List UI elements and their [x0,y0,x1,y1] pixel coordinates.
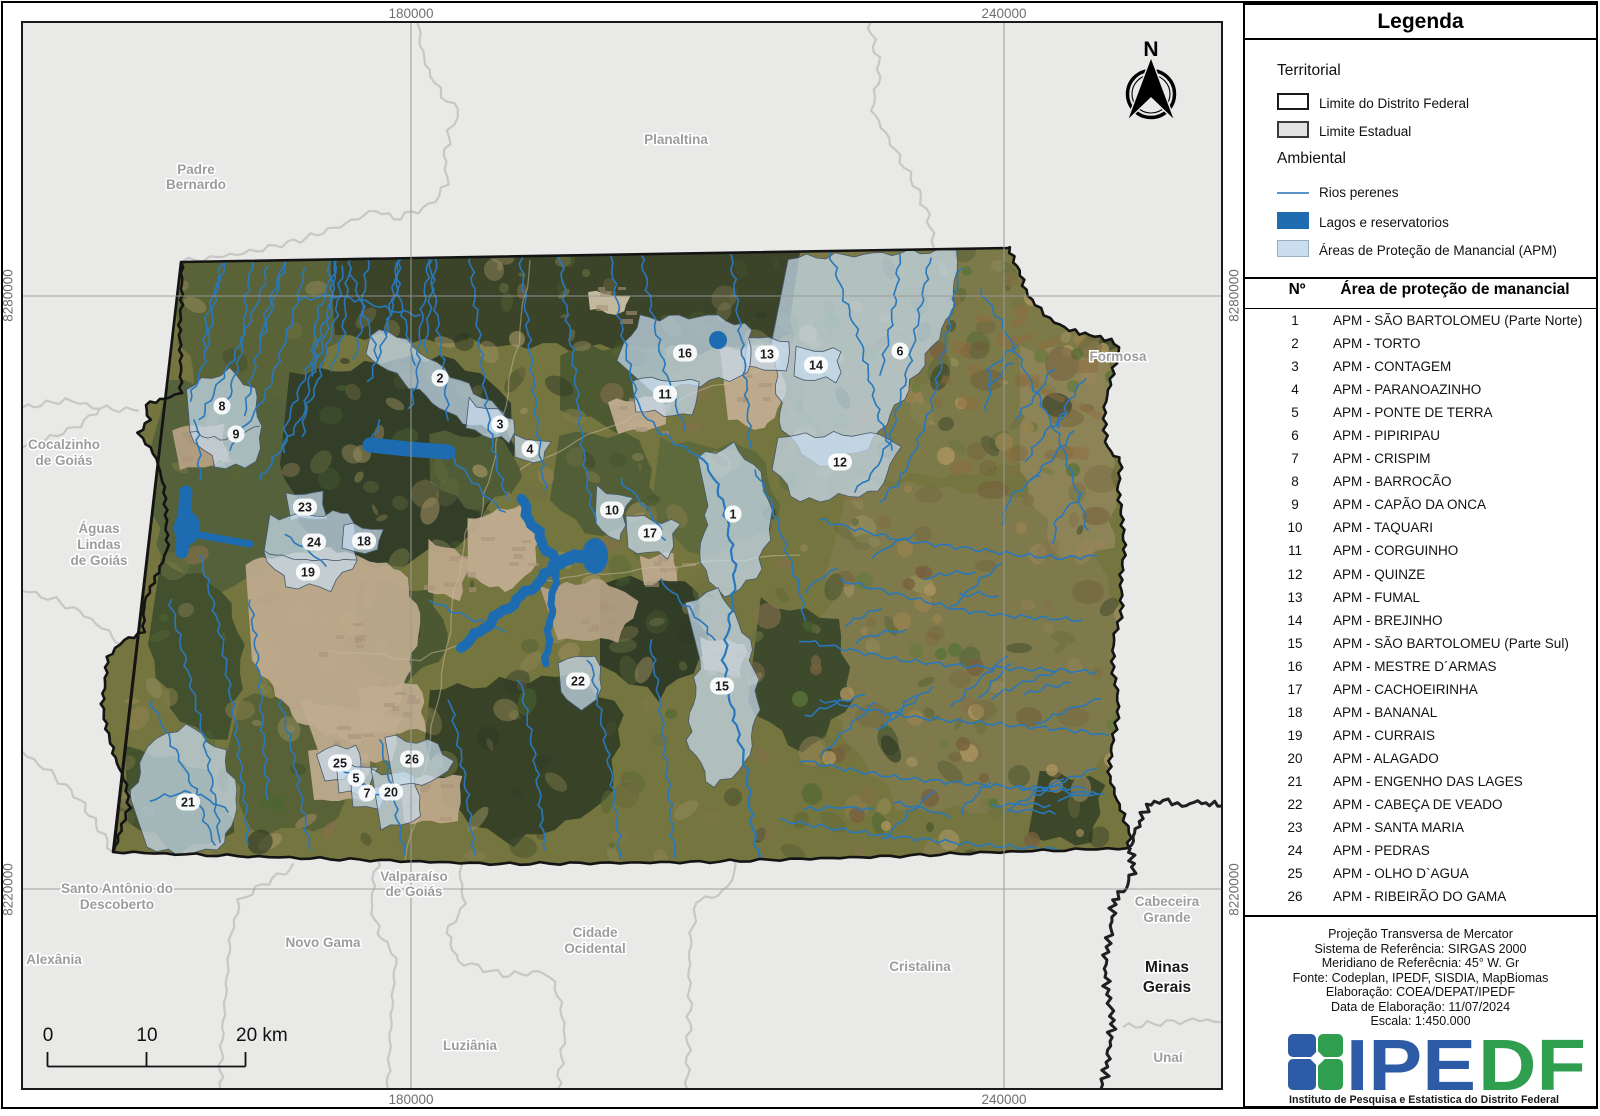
svg-text:de Goiás: de Goiás [70,553,127,568]
svg-text:14: 14 [809,359,823,373]
svg-text:16: 16 [678,347,692,361]
svg-text:23: 23 [298,501,312,515]
svg-text:Cabeceira: Cabeceira [1135,894,1200,909]
svg-text:1: 1 [730,508,737,522]
svg-text:Águas: Águas [78,521,119,536]
svg-text:Minas: Minas [1145,959,1189,976]
svg-text:10: 10 [136,1025,157,1046]
svg-text:Cidade: Cidade [572,925,618,940]
svg-text:Novo Gama: Novo Gama [285,935,361,950]
svg-text:13: 13 [760,348,774,362]
svg-text:Valparaíso: Valparaíso [380,869,448,884]
svg-text:19: 19 [301,566,315,580]
svg-text:5: 5 [353,772,360,786]
svg-text:26: 26 [405,753,419,767]
svg-text:Unaí: Unaí [1153,1050,1184,1065]
svg-text:Bernardo: Bernardo [166,177,226,192]
svg-text:Alexânia: Alexânia [26,952,82,967]
svg-text:12: 12 [833,456,847,470]
svg-text:N: N [1143,38,1158,61]
svg-text:7: 7 [364,787,371,801]
svg-text:18: 18 [357,535,371,549]
svg-text:Instituto de Pesquisa e Estati: Instituto de Pesquisa e Estatistica do D… [1289,1094,1559,1106]
svg-text:20: 20 [384,786,398,800]
svg-text:Formosa: Formosa [1089,349,1147,364]
svg-text:Planaltina: Planaltina [644,132,708,147]
svg-text:de Goiás: de Goiás [35,453,92,468]
svg-text:4: 4 [527,443,534,457]
svg-text:Santo Antônio do: Santo Antônio do [61,881,173,896]
svg-text:de Goiás: de Goiás [385,884,442,899]
svg-text:9: 9 [233,428,240,442]
svg-text:2: 2 [437,372,444,386]
svg-text:8: 8 [219,400,226,414]
svg-text:10: 10 [605,504,619,518]
svg-text:17: 17 [643,527,657,541]
svg-text:6: 6 [897,345,904,359]
svg-text:Lindas: Lindas [77,537,121,552]
svg-text:20 km: 20 km [236,1025,288,1046]
svg-text:Luziânia: Luziânia [443,1038,497,1053]
svg-text:0: 0 [43,1025,54,1046]
svg-text:15: 15 [715,680,729,694]
svg-text:Ocidental: Ocidental [564,941,626,956]
svg-text:22: 22 [571,675,585,689]
svg-text:Cristalina: Cristalina [889,959,951,974]
svg-text:Cocalzinho: Cocalzinho [28,437,100,452]
svg-text:25: 25 [333,757,347,771]
svg-text:Padre: Padre [177,162,215,177]
svg-text:3: 3 [497,418,504,432]
svg-text:Descoberto: Descoberto [80,897,154,912]
svg-text:Gerais: Gerais [1143,979,1191,996]
svg-text:Grande: Grande [1143,910,1191,925]
svg-text:24: 24 [307,536,321,550]
svg-text:11: 11 [658,388,671,402]
svg-text:21: 21 [181,796,195,810]
